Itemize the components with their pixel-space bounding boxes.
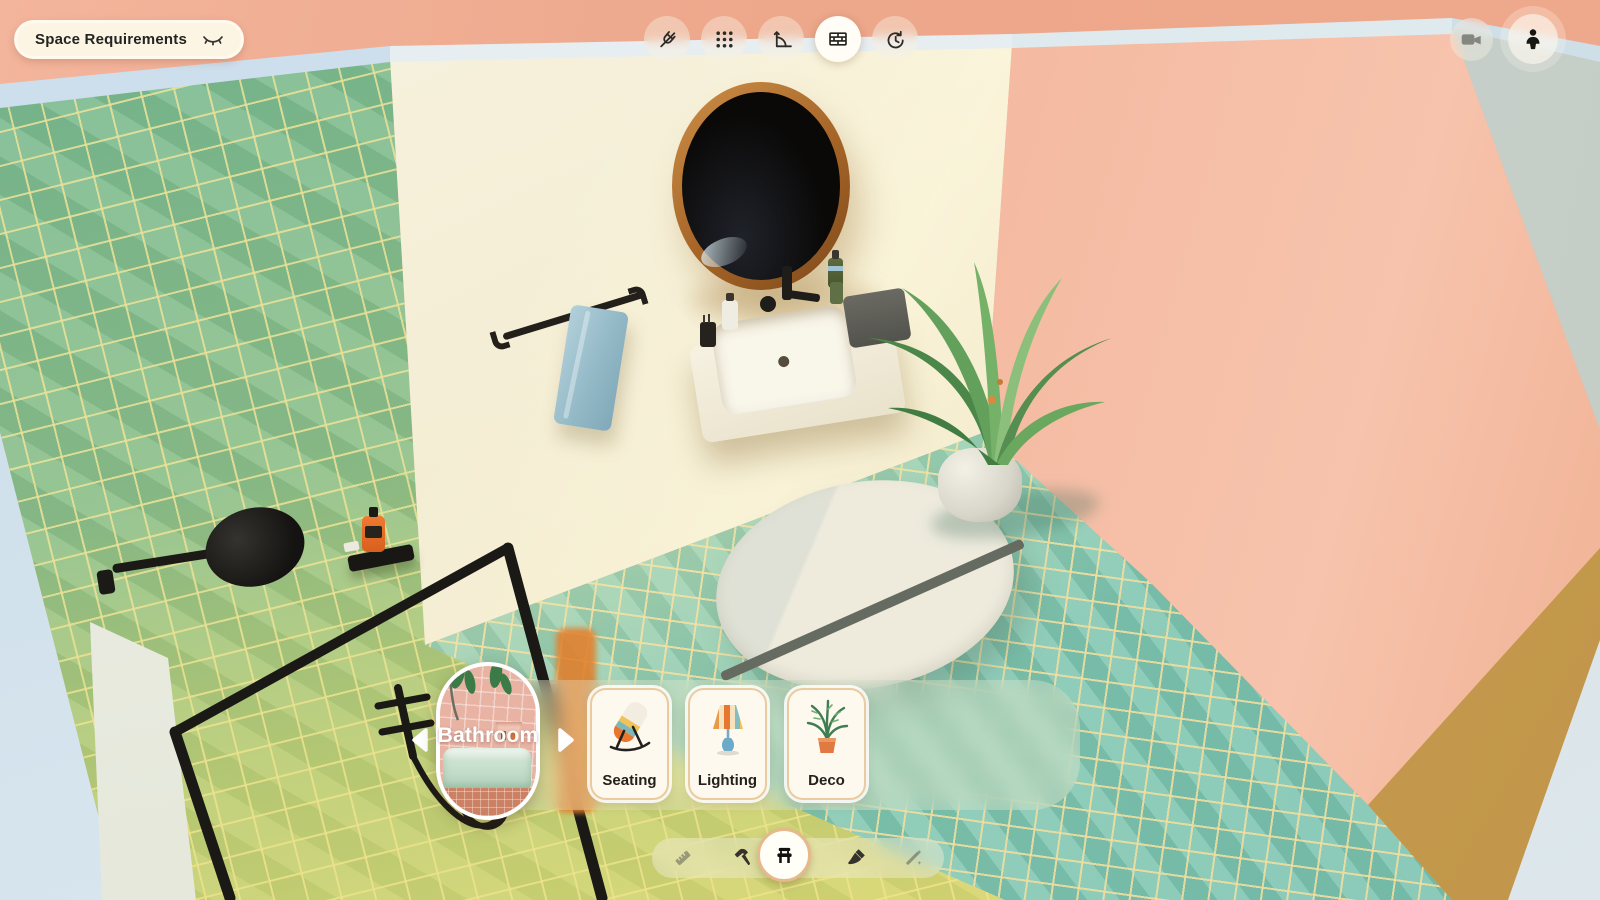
space-requirements-toggle[interactable]: Space Requirements bbox=[14, 20, 244, 59]
furniture-tool-selected[interactable] bbox=[757, 828, 811, 882]
room-label: Bathroom bbox=[428, 724, 548, 748]
category-card-lighting[interactable]: Lighting bbox=[688, 688, 767, 800]
space-requirements-label: Space Requirements bbox=[35, 31, 187, 48]
brick-wall-icon bbox=[827, 28, 849, 50]
toothbrush-cup[interactable] bbox=[700, 322, 716, 347]
palm-plant[interactable] bbox=[850, 250, 1130, 480]
thumb-floor bbox=[440, 788, 536, 816]
history-button[interactable] bbox=[872, 16, 918, 62]
clock-rotate-icon bbox=[885, 29, 906, 50]
magic-wand-icon[interactable] bbox=[902, 847, 924, 869]
round-mirror[interactable] bbox=[672, 82, 850, 290]
thumb-hanging-plants bbox=[440, 666, 536, 726]
app-viewport: Space Requirements bbox=[0, 0, 1600, 900]
eye-closed-icon bbox=[201, 30, 225, 50]
table-lamp-illustration bbox=[700, 697, 756, 761]
chevron-right-icon[interactable] bbox=[556, 727, 576, 753]
bench-icon bbox=[773, 844, 796, 867]
top-toolbar bbox=[644, 16, 918, 62]
chevron-left-icon[interactable] bbox=[410, 727, 430, 753]
grid-dots-icon bbox=[714, 29, 735, 50]
lounge-chair-illustration bbox=[602, 697, 658, 761]
sink-drain bbox=[777, 355, 790, 368]
category-card-deco[interactable]: Deco bbox=[787, 688, 866, 800]
wall-faucet-spout bbox=[782, 266, 792, 300]
first-person-button[interactable] bbox=[1508, 14, 1558, 64]
category-card-seating[interactable]: Seating bbox=[590, 688, 669, 800]
angle-ruler-icon bbox=[771, 29, 792, 50]
category-label: Seating bbox=[602, 772, 656, 789]
category-label: Lighting bbox=[698, 772, 757, 789]
walls-button[interactable] bbox=[815, 16, 861, 62]
category-label: Deco bbox=[808, 772, 845, 789]
grid-button[interactable] bbox=[701, 16, 747, 62]
green-can[interactable] bbox=[830, 282, 843, 304]
paintbrush-icon[interactable] bbox=[845, 847, 867, 869]
ruler-icon[interactable] bbox=[672, 847, 694, 869]
hammer-icon[interactable] bbox=[730, 847, 752, 869]
person-icon bbox=[1521, 27, 1545, 51]
thumb-bathtub bbox=[443, 748, 531, 790]
soap-dispenser[interactable] bbox=[722, 300, 738, 330]
magnet-off-icon bbox=[657, 29, 678, 50]
faucet-knob bbox=[760, 296, 776, 312]
video-camera-icon bbox=[1460, 28, 1483, 51]
measure-angle-button[interactable] bbox=[758, 16, 804, 62]
potted-plant-illustration bbox=[799, 697, 855, 761]
camera-mode-button[interactable] bbox=[1450, 18, 1493, 61]
snap-button[interactable] bbox=[644, 16, 690, 62]
